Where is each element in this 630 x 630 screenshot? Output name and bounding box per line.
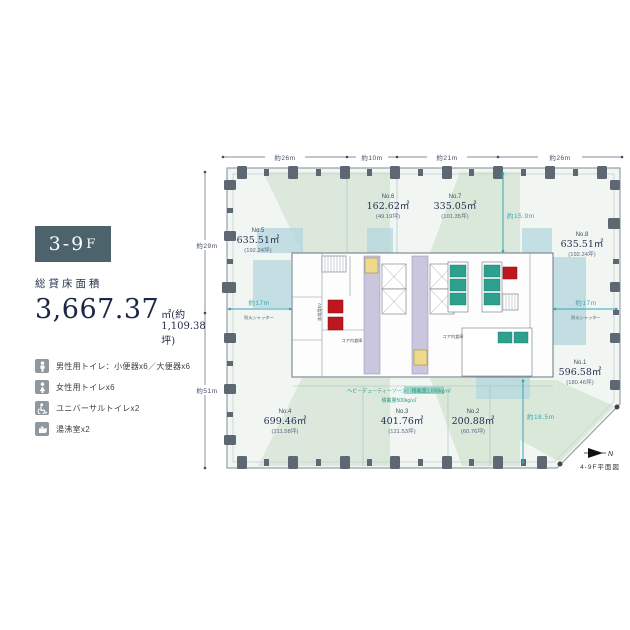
floor-badge-suffix: F (86, 237, 97, 252)
stair-north (322, 256, 346, 272)
unit-no: No.2 (467, 409, 480, 415)
fire-shutter-label: 防火シャッター (244, 314, 273, 321)
unit-tsubo: (192.24坪) (568, 250, 595, 258)
dim-top-4: 約26m (549, 153, 570, 162)
facility-label: 男性用トイレ：小便器x6／大便器x6 (56, 361, 190, 372)
unit-tsubo: (49.19坪) (376, 212, 400, 220)
heavy-duty-label: ヘビーデューティーゾーン：積載量1,000kg/㎡ (347, 388, 451, 395)
unit-tsubo: (121.53坪) (388, 427, 415, 435)
plan-caption: 4-9F平面図 (580, 463, 620, 471)
unit-no: No.6 (382, 194, 395, 200)
female-icon (35, 380, 49, 394)
total-area-value: 3,667.37 ㎡(約1,109.38坪) (35, 294, 210, 347)
facility-row: 男性用トイレ：小便器x6／大便器x6 (35, 359, 210, 373)
unit-no: No.4 (279, 409, 292, 415)
hot-water-room (414, 350, 427, 365)
compass: N (584, 448, 614, 458)
emergency-ev-label: 非常用EV (316, 303, 323, 321)
core-storage-label: コア内倉庫 (443, 333, 464, 340)
info-panel: 3-9 F 総貸床面積 3,667.37 ㎡(約1,109.38坪) 男性用トイ… (35, 226, 210, 443)
facility-label: 湯沸室x2 (56, 424, 90, 435)
dim-inner-h-right: 約17m (575, 298, 596, 307)
unit-tsubo: (101.35坪) (441, 212, 468, 220)
total-area-number: 3,667.37 (35, 294, 159, 325)
unit-no: No.7 (449, 194, 462, 200)
compass-n-label: N (608, 451, 614, 458)
dim-inner-h-left: 約17m (248, 298, 269, 307)
dim-inner-v2: 約18.5m (527, 412, 555, 421)
unit-area: 162.62㎡ (367, 201, 410, 212)
wheelchair-icon (35, 401, 49, 415)
unit-tsubo: (60.76坪) (461, 427, 485, 435)
unit-area: 635.51㎡ (561, 239, 604, 250)
unit-area: 699.46㎡ (264, 416, 307, 427)
facility-row: 湯沸室x2 (35, 422, 210, 436)
dim-top-2: 約10m (361, 153, 382, 162)
unit-tsubo: (180.46坪) (566, 378, 593, 386)
unit-tsubo: (192.24坪) (244, 246, 271, 254)
fire-shutter-label: 防火シャッター (571, 314, 600, 321)
floor-badge-main: 3-9 (49, 233, 86, 255)
load-label: 積載量500kg/㎡ (381, 397, 416, 404)
unit-no: No.1 (574, 360, 587, 366)
unit-no: No.8 (576, 232, 589, 238)
total-area-label: 総貸床面積 (35, 276, 210, 291)
facility-row: 女性用トイレx6 (35, 380, 210, 394)
unit-area: 335.05㎡ (434, 201, 477, 212)
dim-inner-v1: 約15.9m (507, 211, 535, 220)
floorplan-page: コア内倉庫 コア内倉庫 非常用EV 約26m 約10m 約21m 約26m (0, 0, 630, 630)
unit-no: No.5 (252, 228, 265, 234)
unit-area: 200.88㎡ (452, 416, 495, 427)
core-storage-label: コア内倉庫 (342, 337, 363, 344)
core-corridor-west (364, 256, 380, 374)
floor-badge: 3-9 F (35, 226, 111, 262)
dim-top-3: 約21m (436, 153, 457, 162)
unit-area: 635.51㎡ (237, 235, 280, 246)
dimension-top: 約26m 約10m 約21m 約26m (222, 151, 624, 162)
facility-row: ユニバーサルトイレx2 (35, 401, 210, 415)
male-icon (35, 359, 49, 373)
facility-label: 女性用トイレx6 (56, 382, 115, 393)
total-area-unit: ㎡(約1,109.38坪) (161, 306, 210, 347)
unit-no: No.3 (396, 409, 409, 415)
unit-area: 596.58㎡ (559, 367, 602, 378)
facility-list: 男性用トイレ：小便器x6／大便器x6 女性用トイレx6 ユニバーサルトイレx2 … (35, 359, 210, 436)
hot-water-room (365, 258, 378, 273)
north-arrow-icon (588, 448, 603, 458)
kettle-icon (35, 422, 49, 436)
facility-label: ユニバーサルトイレx2 (56, 403, 140, 414)
core-southeast-rooms (462, 328, 532, 376)
dim-top-1: 約26m (274, 153, 295, 162)
building-core: コア内倉庫 コア内倉庫 非常用EV (292, 253, 553, 377)
unit-area: 401.76㎡ (381, 416, 424, 427)
unit-tsubo: (211.58坪) (272, 427, 299, 435)
